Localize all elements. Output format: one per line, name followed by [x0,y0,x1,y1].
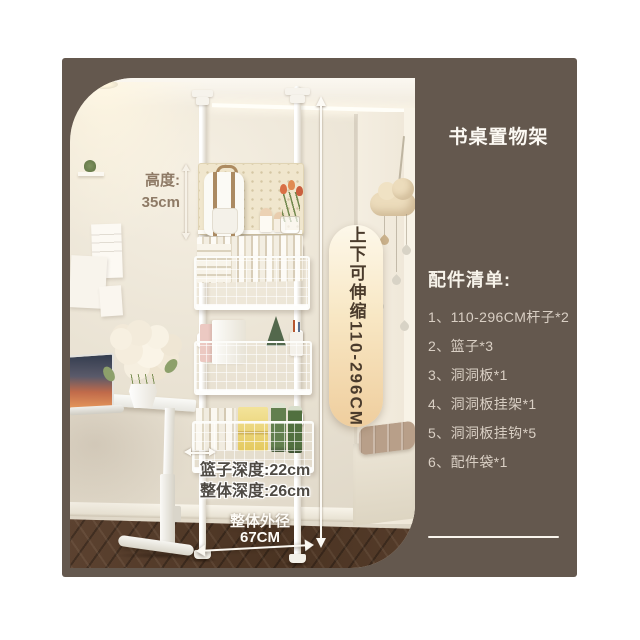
room-photo: 高度: 35cm 上下可伸缩110-296CM 篮子深度:22cm 整体深度:2… [70,78,415,568]
product-title: 书桌置物架 [420,122,577,149]
accessory-item: 2、篮子*3 [428,332,576,361]
range-badge-text: 上下可伸缩110-296CM [344,226,369,427]
right-arrowhead-icon [209,448,216,456]
curtain-edge [404,108,415,438]
cloud-string [396,216,397,272]
mini-wall-shelf [78,172,104,176]
down-arrowhead-icon [182,233,190,240]
accessory-item: 6、配件袋*1 [428,448,576,477]
pole-ceiling-mount [192,90,213,97]
ceiling-downlight [90,80,118,89]
height-annotation: 高度: 35cm [128,170,180,214]
tulip-flower [280,184,287,194]
right-arrowhead-icon [305,539,315,551]
accessory-list-heading: 配件清单: [428,266,511,292]
depth-annotation: 篮子深度:22cm 整体深度:26cm [200,460,330,502]
basket-depth-text: 篮子深度:22cm [200,460,330,481]
down-arrowhead-icon [316,538,326,548]
pole-ceiling-mount [285,88,310,95]
bouquet-leaf [162,357,180,376]
vertical-double-arrow-icon [181,164,191,240]
tulip-cup [280,216,300,234]
extendable-range-badge: 上下可伸缩110-296CM [329,225,383,427]
cloud-string [406,214,407,246]
overall-depth-text: 整体深度:26cm [200,481,330,502]
divider-line [428,536,559,538]
depth-double-arrow-icon [184,448,216,458]
pole-ceiling-mount [196,97,209,105]
desk-leg-upper [163,408,175,478]
accessory-list: 1、110-296CM杆子*2 2、篮子*3 3、洞洞板*1 4、洞洞板挂架*1… [428,303,576,477]
desk-crank [173,506,181,522]
overall-width-label: 整体外径 [220,514,300,530]
arrow-line [189,452,211,454]
arrow-line [202,544,308,552]
tulip-flower [288,180,295,190]
wall-card [99,285,123,316]
doll-figurine [260,208,272,232]
pole-foot [289,554,306,563]
accessory-item: 3、洞洞板*1 [428,361,576,390]
laptop-screen [70,352,114,411]
backpack-pocket [212,208,238,234]
height-label: 高度: [128,170,180,192]
wire-basket-1 [194,256,310,310]
accessory-item: 4、洞洞板挂架*1 [428,390,576,419]
pole-ceiling-mount [290,95,305,103]
height-value: 35cm [128,192,180,214]
product-image: 高度: 35cm 上下可伸缩110-296CM 篮子深度:22cm 整体深度:2… [0,0,640,640]
tulip-flower [296,186,303,196]
accessory-item: 1、110-296CM杆子*2 [428,303,576,332]
cloud-lamp [392,178,414,200]
arrow-line [185,169,187,235]
small-plant [84,160,96,172]
flower-bouquet [110,328,132,350]
accessory-item: 5、洞洞板挂钩*5 [428,419,576,448]
wire-basket-2 [194,341,312,395]
